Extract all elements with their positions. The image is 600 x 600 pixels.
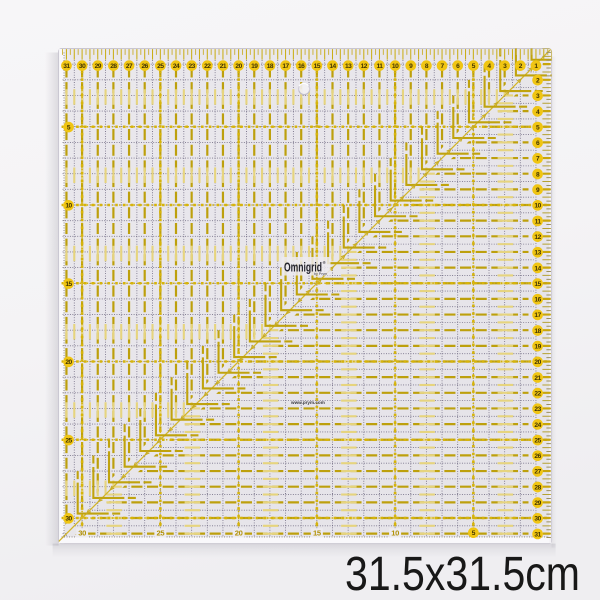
svg-text:11: 11	[535, 218, 542, 225]
svg-text:13: 13	[534, 250, 541, 257]
svg-text:16: 16	[298, 63, 305, 70]
svg-text:15: 15	[534, 281, 541, 288]
svg-text:19: 19	[534, 344, 541, 351]
svg-text:10: 10	[534, 203, 541, 210]
svg-text:10: 10	[392, 63, 399, 70]
svg-text:14: 14	[534, 265, 541, 272]
svg-text:29: 29	[95, 63, 102, 70]
svg-text:30: 30	[65, 516, 72, 523]
svg-text:®: ®	[323, 260, 326, 265]
svg-text:15: 15	[313, 529, 322, 538]
svg-text:15: 15	[65, 281, 72, 288]
svg-text:29: 29	[534, 500, 541, 507]
svg-text:24: 24	[534, 422, 541, 429]
svg-text:20: 20	[235, 529, 243, 538]
svg-text:22: 22	[534, 390, 541, 397]
svg-text:21: 21	[220, 63, 227, 70]
svg-text:17: 17	[534, 312, 541, 319]
svg-text:16: 16	[534, 297, 541, 304]
svg-text:18: 18	[534, 328, 541, 335]
svg-text:15: 15	[314, 63, 321, 70]
svg-text:26: 26	[142, 63, 149, 70]
svg-text:by Prym: by Prym	[314, 272, 327, 276]
svg-text:30: 30	[79, 63, 86, 70]
svg-text:11: 11	[376, 63, 383, 70]
svg-text:25: 25	[534, 437, 541, 444]
svg-text:12: 12	[361, 63, 368, 70]
svg-text:31: 31	[534, 531, 541, 538]
svg-text:21: 21	[534, 375, 541, 382]
svg-text:30: 30	[534, 516, 541, 523]
svg-text:30: 30	[78, 529, 86, 538]
svg-text:20: 20	[235, 63, 242, 70]
svg-text:17: 17	[282, 63, 289, 70]
svg-text:23: 23	[188, 63, 195, 70]
svg-text:26: 26	[534, 453, 541, 460]
svg-text:12: 12	[534, 234, 541, 241]
svg-text:25: 25	[157, 529, 166, 538]
svg-text:13: 13	[345, 63, 352, 70]
svg-text:23: 23	[534, 406, 541, 413]
svg-text:31.5x31.5cm: 31.5x31.5cm	[345, 547, 580, 600]
svg-text:10: 10	[65, 203, 72, 210]
svg-text:20: 20	[534, 359, 541, 366]
svg-text:28: 28	[534, 484, 541, 491]
svg-text:10: 10	[391, 529, 399, 538]
svg-text:25: 25	[65, 437, 72, 444]
svg-text:14: 14	[329, 63, 336, 70]
svg-text:19: 19	[251, 63, 258, 70]
svg-text:18: 18	[267, 63, 274, 70]
svg-text:27: 27	[126, 63, 133, 70]
svg-text:27: 27	[534, 469, 541, 476]
svg-text:20: 20	[65, 359, 72, 366]
svg-text:www.prym.com: www.prym.com	[290, 400, 325, 405]
svg-text:31: 31	[63, 63, 70, 70]
svg-text:25: 25	[157, 63, 164, 70]
svg-text:22: 22	[204, 63, 211, 70]
svg-text:24: 24	[173, 63, 180, 70]
svg-text:28: 28	[110, 63, 117, 70]
